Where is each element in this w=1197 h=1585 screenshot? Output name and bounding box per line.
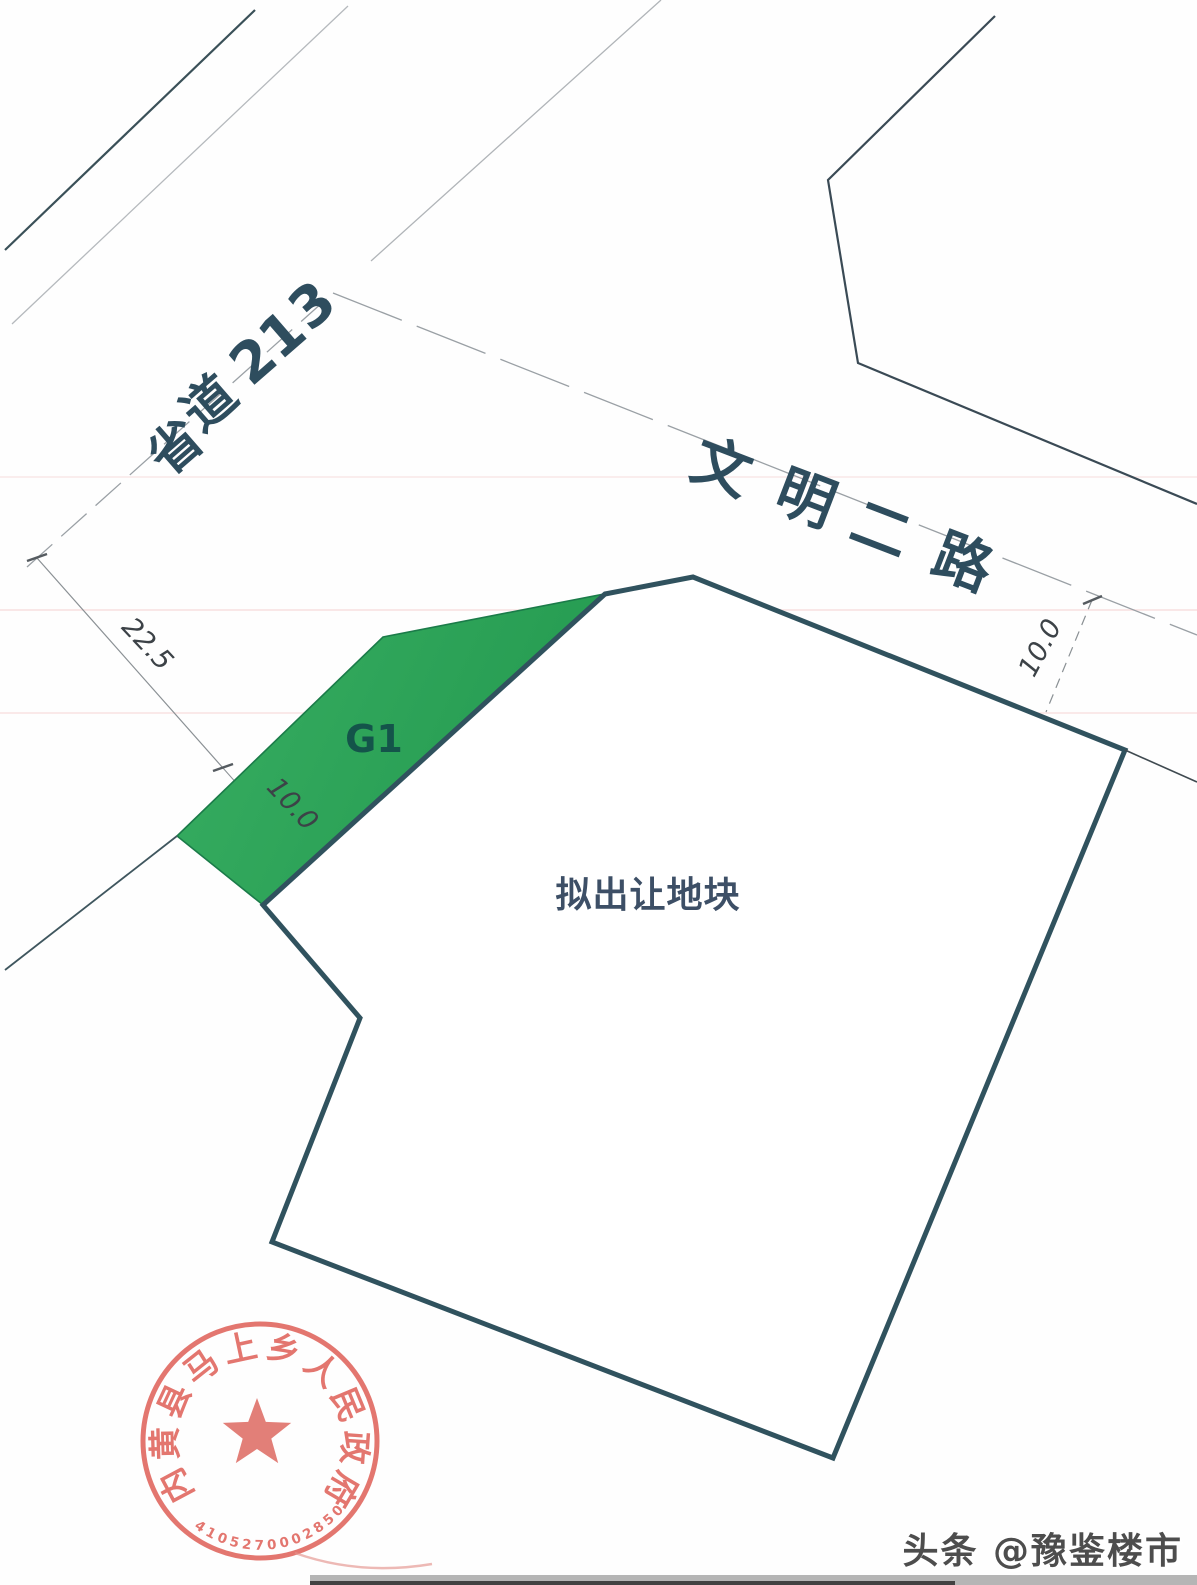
- seal-serial-digit: 5: [228, 1534, 241, 1552]
- parcel-label: 拟出让地块: [555, 875, 740, 916]
- seal-smudge-mark: [295, 1553, 432, 1568]
- road-wenming-centerline: [333, 293, 1197, 635]
- seal-title-char: 乡: [263, 1326, 305, 1372]
- seal-star-icon: [223, 1398, 291, 1463]
- road-edge-extension-line: [5, 836, 177, 970]
- boundary-extension-line: [1125, 750, 1197, 782]
- dim-tick: [1083, 596, 1102, 604]
- government-seal: 内黄县马上乡人民政府 4105270002850: [143, 1324, 432, 1568]
- adjacent-block-outline: [828, 16, 1197, 504]
- dim-line-22-5: [37, 558, 223, 768]
- seal-title-char: 上: [220, 1326, 260, 1371]
- seal-serial-digit: 7: [255, 1538, 265, 1554]
- watermark: 头条 @豫鉴楼市: [902, 1522, 1183, 1574]
- seal-serial-digit: 0: [215, 1530, 230, 1548]
- road-wenming-label-char: 二: [842, 487, 921, 571]
- dim-label-22-5: 22.5: [115, 612, 179, 677]
- dim-tick: [27, 554, 47, 561]
- seal-title-char: 人: [297, 1344, 347, 1395]
- road-labels: 省道213文明二路: [136, 269, 1003, 605]
- dim-tick: [213, 764, 233, 771]
- seal-serial-digit: 0: [266, 1537, 277, 1554]
- seal-title-char: 政: [334, 1430, 375, 1466]
- seal-serial-digit: 0: [278, 1534, 291, 1552]
- road-wenming-label-char: 文: [683, 425, 762, 509]
- scan-edge-band-dark: [310, 1581, 955, 1585]
- seal-title-char: 黄: [145, 1426, 185, 1460]
- road-edge-faint-line: [371, 0, 661, 261]
- land-parcel-map-page: G1 拟出让地块 22.5 10.0 10.0 省道213文明二路 内黄县马上乡…: [0, 0, 1197, 1585]
- land-parcel-map: G1 拟出让地块 22.5 10.0 10.0 省道213文明二路 内黄县马上乡…: [0, 0, 1197, 1585]
- road-wenming-label-char: 路: [924, 520, 1003, 605]
- g1-label: G1: [345, 717, 403, 761]
- dim-label-10-right: 10.0: [1013, 614, 1069, 682]
- seal-title-char: 马: [176, 1341, 226, 1392]
- seal-serial-arc: 4105270002850: [191, 1502, 346, 1554]
- seal-serial-digit: 2: [241, 1536, 252, 1553]
